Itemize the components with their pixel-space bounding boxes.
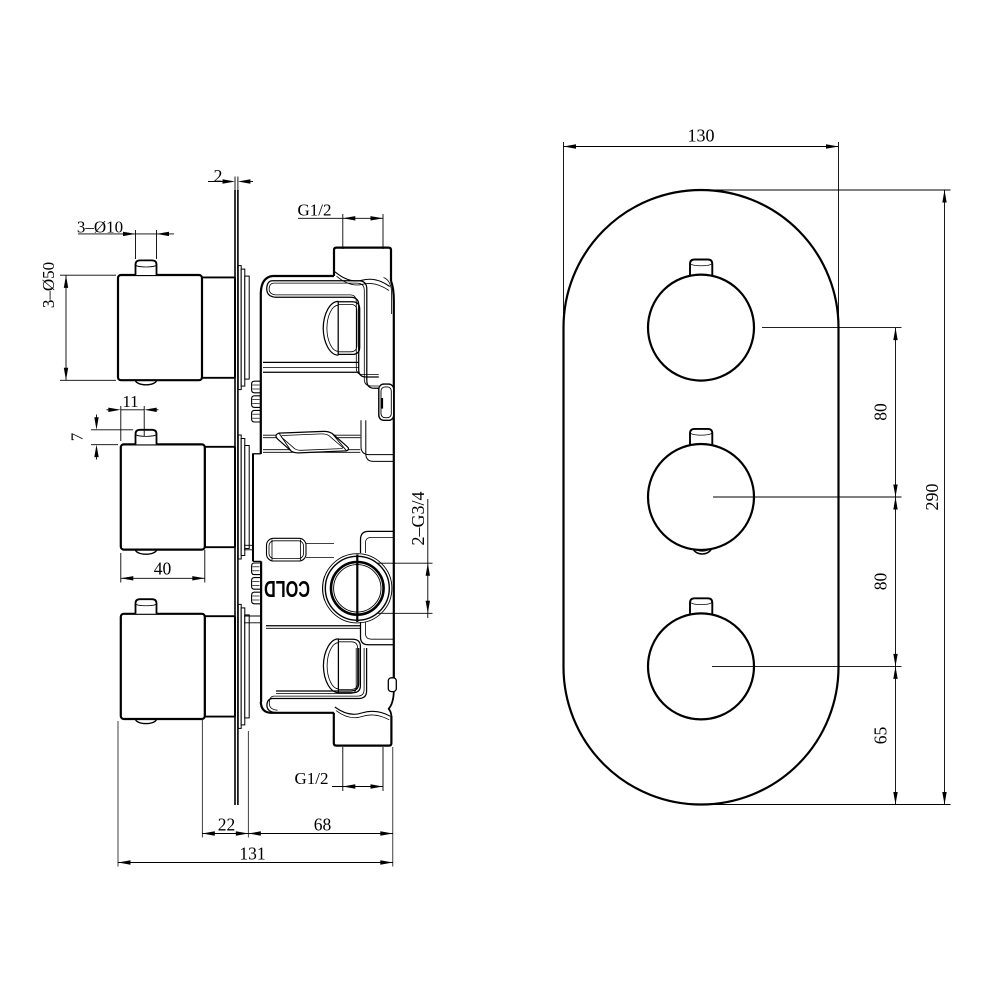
svg-text:130: 130 (688, 126, 715, 146)
svg-text:7: 7 (68, 432, 87, 441)
svg-text:3–Ø50: 3–Ø50 (39, 262, 58, 308)
svg-text:2–G3/4: 2–G3/4 (408, 492, 428, 546)
svg-text:2: 2 (214, 166, 223, 186)
svg-text:290: 290 (922, 484, 942, 511)
svg-text:G1/2: G1/2 (295, 769, 329, 788)
svg-text:80: 80 (871, 403, 891, 421)
svg-text:COLD: COLD (264, 576, 310, 602)
svg-text:11: 11 (122, 392, 138, 411)
svg-text:65: 65 (871, 727, 891, 745)
svg-text:80: 80 (871, 573, 891, 591)
svg-text:131: 131 (239, 844, 265, 864)
svg-text:40: 40 (154, 559, 172, 579)
svg-text:68: 68 (314, 815, 332, 835)
svg-text:22: 22 (218, 815, 236, 835)
svg-text:G1/2: G1/2 (298, 201, 332, 220)
